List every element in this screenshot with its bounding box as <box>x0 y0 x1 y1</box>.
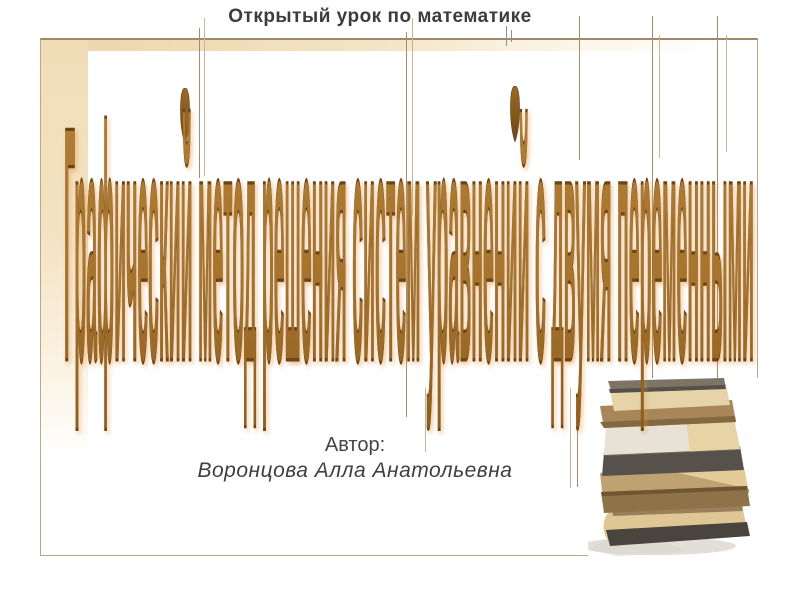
heading-wordart: Графический метод решения систем уравнен… <box>62 105 756 440</box>
slide-canvas: Графический метод решения систем уравнен… <box>0 0 800 600</box>
hanging-line <box>511 30 512 42</box>
heading-text: Графический метод решения систем уравнен… <box>64 58 754 431</box>
hanging-line <box>506 26 507 46</box>
author-name: Воронцова Алла Анатольевна <box>55 459 655 483</box>
page-title: Открытый урок по математике <box>0 6 760 28</box>
author-label: Автор: <box>155 434 555 457</box>
